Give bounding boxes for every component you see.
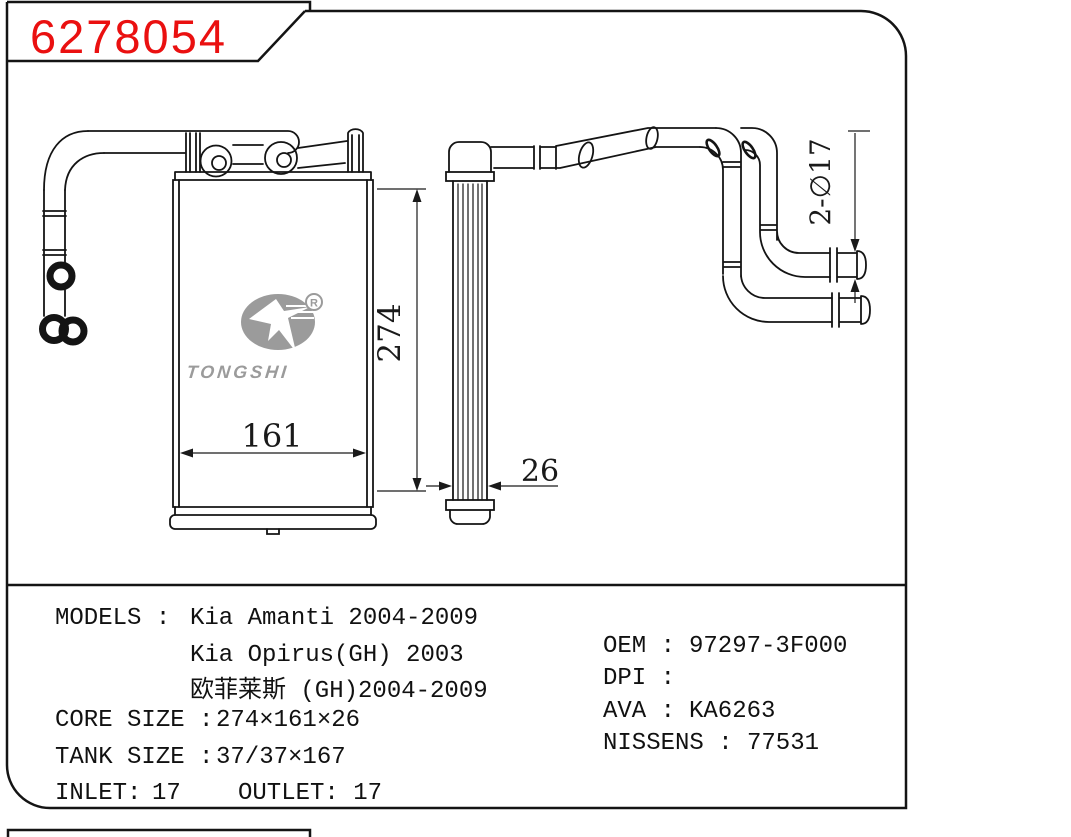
models-label: MODELS : <box>55 605 170 632</box>
models-line-2: Kia Opirus(GH) 2003 <box>190 642 464 669</box>
next-sheet-box <box>8 830 310 837</box>
pipe-elbow-circle-2-inner <box>277 153 291 167</box>
dim161-label: 161 <box>241 417 302 455</box>
pipe-joint-1 <box>576 141 596 170</box>
pipe1-fitting <box>832 293 870 327</box>
models-line-1: MODELS : Kia Amanti 2004-2009 <box>55 605 478 632</box>
side-bottom-flange <box>446 500 494 510</box>
registered-mark: R <box>310 298 318 310</box>
side-column-fins <box>458 184 482 500</box>
side-view <box>446 142 494 524</box>
oem-line: OEM : 97297-3F000 <box>603 633 847 660</box>
models-value-2: Kia Opirus(GH) 2003 <box>190 642 464 669</box>
tank-size-label: TANK SIZE : <box>55 744 213 771</box>
tongshi-logo: R TONGSHI <box>186 294 322 382</box>
outlet-value: 17 <box>353 780 382 807</box>
core-size-label: CORE SIZE : <box>55 707 213 734</box>
top-left-stub <box>186 133 200 172</box>
ring-fitting-1 <box>50 265 72 287</box>
top-right-stub <box>348 129 363 172</box>
nissens-label: NISSENS : <box>603 730 733 757</box>
pipe-elbow-circle-1-inner <box>212 156 226 170</box>
dpi-label: DPI : <box>603 665 675 692</box>
pipe1-joint-ring <box>704 138 721 158</box>
dim274-arrow-down <box>413 478 422 491</box>
models-value-3: 欧菲莱斯 (GH)2004-2009 <box>190 676 488 705</box>
part-number: 6278054 <box>30 10 227 63</box>
side-top-flange <box>446 172 494 181</box>
bottom-cap <box>170 515 376 529</box>
bottom-tank <box>175 507 371 515</box>
left-pipe-vertical <box>44 190 65 316</box>
oem-label: OEM : <box>603 633 675 660</box>
models-line-3: 欧菲莱斯 (GH)2004-2009 <box>190 676 488 705</box>
logo-text: TONGSHI <box>186 362 291 382</box>
ava-line: AVA : KA6263 <box>603 698 775 725</box>
dim17-arrow-up <box>851 279 860 292</box>
ring-fitting-3 <box>62 320 84 342</box>
nissens-value: 77531 <box>747 730 819 757</box>
core-size-line: CORE SIZE : 274×161×26 <box>55 707 360 734</box>
inlet-outlet-line: INLET: 17 OUTLET: 17 <box>55 780 382 807</box>
dim274-arrow-up <box>413 189 422 202</box>
core-size-value: 274×161×26 <box>216 707 360 734</box>
side-top-cap <box>449 142 491 172</box>
models-value-1: Kia Amanti 2004-2009 <box>190 605 478 632</box>
pipe-horizontal-run <box>491 128 716 169</box>
side-bottom-cap <box>450 510 490 524</box>
spec-sheet-page: 6278054 R <box>0 0 1071 837</box>
dim17-label: 2-∅17 <box>804 138 837 225</box>
spec-table-left: MODELS : Kia Amanti 2004-2009 Kia Opirus… <box>55 605 488 807</box>
dimension-26: 26 <box>426 454 559 491</box>
top-pipe-run <box>88 131 347 168</box>
left-pipe-elbow <box>44 131 104 190</box>
dim161-arrow-right <box>353 449 366 458</box>
inlet-label: INLET: <box>55 780 141 807</box>
technical-drawing: 6278054 R <box>0 0 1071 837</box>
dim26-label: 26 <box>521 454 559 489</box>
dpi-line: DPI : <box>603 665 675 692</box>
tank-size-line: TANK SIZE : 37/37×167 <box>55 744 346 771</box>
dim26-arrow-left <box>488 482 501 491</box>
outlet-label: OUTLET: <box>238 780 339 807</box>
ava-value: KA6263 <box>689 698 775 725</box>
dim161-arrow-left <box>180 449 193 458</box>
inlet-value: 17 <box>152 780 181 807</box>
nissens-line: NISSENS : 77531 <box>603 730 819 757</box>
pipe2-fitting <box>830 248 866 282</box>
top-tank <box>175 172 371 180</box>
cross-reference-table: OEM : 97297-3F000 DPI : AVA : KA6263 NIS… <box>603 633 847 757</box>
dim26-arrow-right <box>439 482 452 491</box>
pipe-elbow-circle-2 <box>265 142 297 174</box>
oem-value: 97297-3F000 <box>689 633 847 660</box>
front-view <box>43 129 377 534</box>
tank-size-value: 37/37×167 <box>216 744 346 771</box>
ava-label: AVA : <box>603 698 675 725</box>
hose-ring-fittings <box>43 265 85 342</box>
dim17-arrow-down <box>851 239 860 252</box>
dim274-label: 274 <box>372 303 408 362</box>
dimension-274: 274 <box>372 189 426 491</box>
dimension-161: 161 <box>180 417 366 458</box>
left-pipe-couplings <box>43 211 66 255</box>
